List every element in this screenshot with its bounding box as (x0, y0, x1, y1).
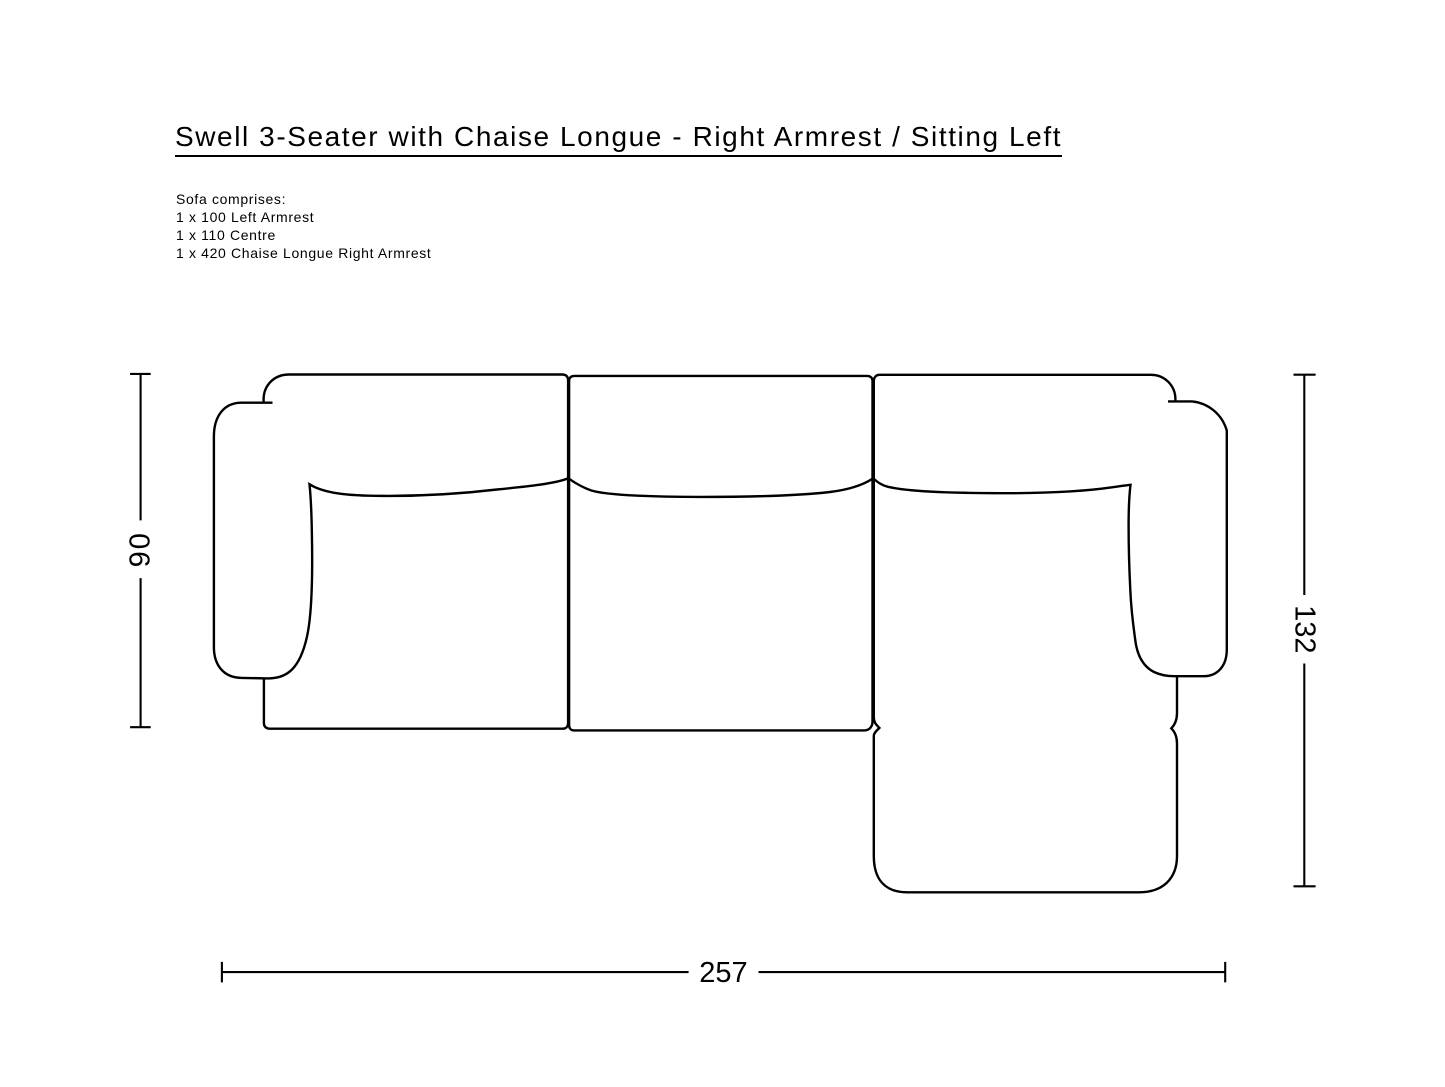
svg-text:90: 90 (125, 531, 157, 567)
svg-text:257: 257 (699, 957, 747, 989)
svg-text:132: 132 (1288, 605, 1320, 653)
